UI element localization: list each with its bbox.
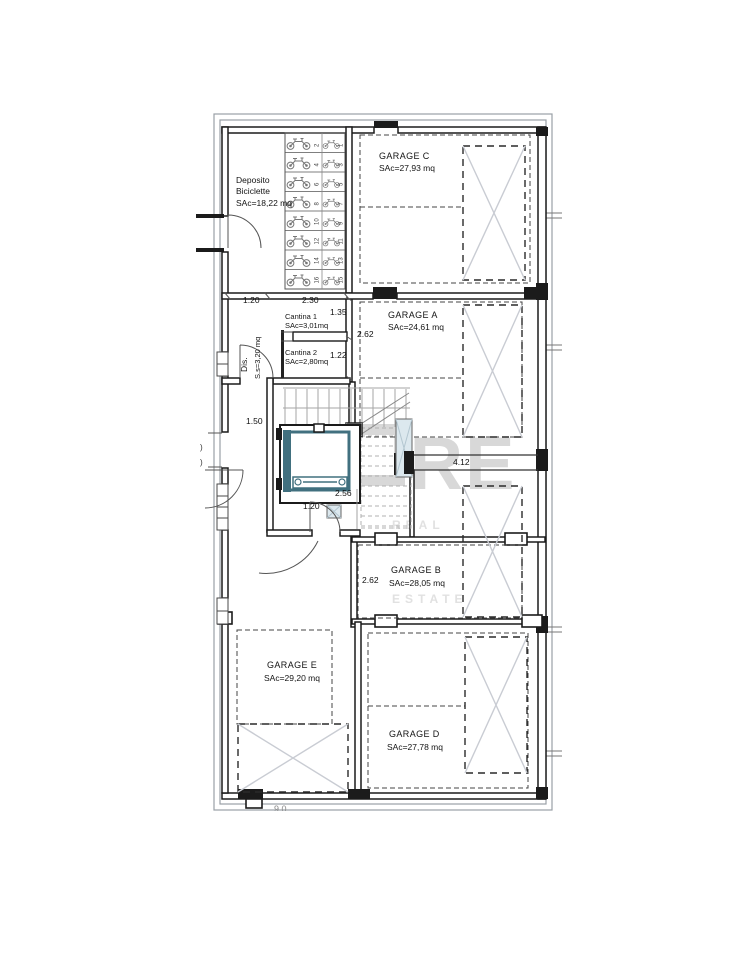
bike-stall-numbers: 2 4 6 8 10 12 14 16 1 3 5 7 9 11 13 15 — [315, 143, 345, 284]
bike-icon — [287, 139, 310, 150]
bike-icon — [323, 238, 339, 246]
room-label-garage-e: GARAGE E — [267, 661, 317, 671]
bike-stall-number: 9 — [339, 221, 345, 225]
door-arc-deposito — [228, 215, 261, 248]
bike-stall-number: 3 — [339, 163, 345, 167]
bike-stall-number: 10 — [315, 218, 321, 225]
bike-icon — [287, 275, 310, 286]
dim-cantina-width: 2.30 — [302, 296, 319, 305]
bike-stall-number: 4 — [315, 163, 321, 167]
dim-landing-door: 1.20 — [303, 502, 320, 511]
room-area-garage-e: SAc=29,20 mq — [264, 674, 320, 683]
room-label-garage-a: GARAGE A — [388, 311, 438, 321]
bike-icon — [287, 236, 310, 247]
exterior-ticks — [546, 213, 562, 756]
bike-icon — [287, 217, 310, 228]
walls — [222, 127, 546, 799]
bike-stall-number: 5 — [339, 182, 345, 186]
room-area-deposito: SAc=18,22 mq — [236, 199, 292, 208]
room-label-garage-d: GARAGE D — [389, 730, 440, 740]
floorplan-page: MRE REAL ESTATE — [0, 0, 745, 962]
room-area-garage-a: SAc=24,61 mq — [388, 323, 444, 332]
room-label-dis: Dis. — [240, 357, 249, 372]
room-label-cantina-2: Cantina 2 — [285, 349, 317, 357]
bike-icon — [323, 277, 339, 285]
bike-stall-number: 13 — [339, 257, 345, 264]
bike-icon — [323, 219, 339, 227]
room-area-cantina-2: SAc=2,80mq — [285, 358, 328, 366]
dim-cantina2-depth: 1.22 — [330, 351, 347, 360]
room-area-dis: S.s=3,20 mq — [254, 337, 262, 379]
room-label-cantina-1: Cantina 1 — [285, 313, 317, 321]
room-area-garage-b: SAc=28,05 mq — [389, 579, 445, 588]
bike-stall-number: 15 — [339, 276, 345, 283]
bike-stall-number: 12 — [315, 237, 321, 244]
room-area-garage-d: SAc=27,78 mq — [387, 743, 443, 752]
room-label-garage-c: GARAGE C — [379, 152, 430, 162]
bike-stall-number: 7 — [339, 202, 345, 206]
bike-stall-number: 6 — [315, 182, 321, 186]
clipped-dim-left-2: ) — [200, 459, 203, 468]
bike-icon — [323, 141, 339, 149]
bike-stall-number: 11 — [339, 238, 345, 245]
room-label-deposito-1: Deposito — [236, 176, 270, 185]
room-area-garage-c: SAc=27,93 mq — [379, 164, 435, 173]
door-arc-garage-e — [259, 541, 318, 573]
bike-icon — [287, 256, 310, 267]
bike-icon — [287, 178, 310, 189]
dim-corridor-length: 4.12 — [453, 458, 470, 467]
bike-stall-number: 2 — [315, 143, 321, 147]
floorplan-drawing: 2 4 6 8 10 12 14 16 1 3 5 7 9 11 13 15 — [0, 0, 745, 962]
corridor — [404, 451, 538, 474]
bike-stall-number: 14 — [315, 257, 321, 264]
dim-exterior-door: 1.50 — [246, 417, 263, 426]
dim-garage-a-side: 2.62 — [357, 330, 374, 339]
bike-icon — [287, 158, 310, 169]
dim-cantina1-depth: 1.35 — [330, 308, 347, 317]
clipped-dim-left-1: ) — [200, 444, 203, 453]
room-label-deposito-2: Biciclette — [236, 187, 270, 196]
bike-stall-number: 1 — [339, 143, 345, 147]
dim-deposito-door: 1.20 — [243, 296, 260, 305]
bike-icon — [323, 199, 339, 207]
dim-garage-b-side: 2.62 — [362, 576, 379, 585]
dim-landing-width: 2.56 — [335, 489, 352, 498]
room-area-cantina-1: SAc=3,01mq — [285, 322, 328, 330]
bike-icon — [323, 180, 339, 188]
bike-icon — [323, 258, 339, 266]
bike-stall-number: 8 — [315, 202, 321, 206]
bike-stall-number: 16 — [315, 276, 321, 283]
bike-rack: 2 4 6 8 10 12 14 16 1 3 5 7 9 11 13 15 — [285, 133, 345, 289]
bike-icon — [323, 160, 339, 168]
outer-boundary — [214, 114, 552, 810]
clipped-dim-bottom: 9,0 — [274, 805, 287, 811]
room-label-garage-b: GARAGE B — [391, 566, 441, 576]
